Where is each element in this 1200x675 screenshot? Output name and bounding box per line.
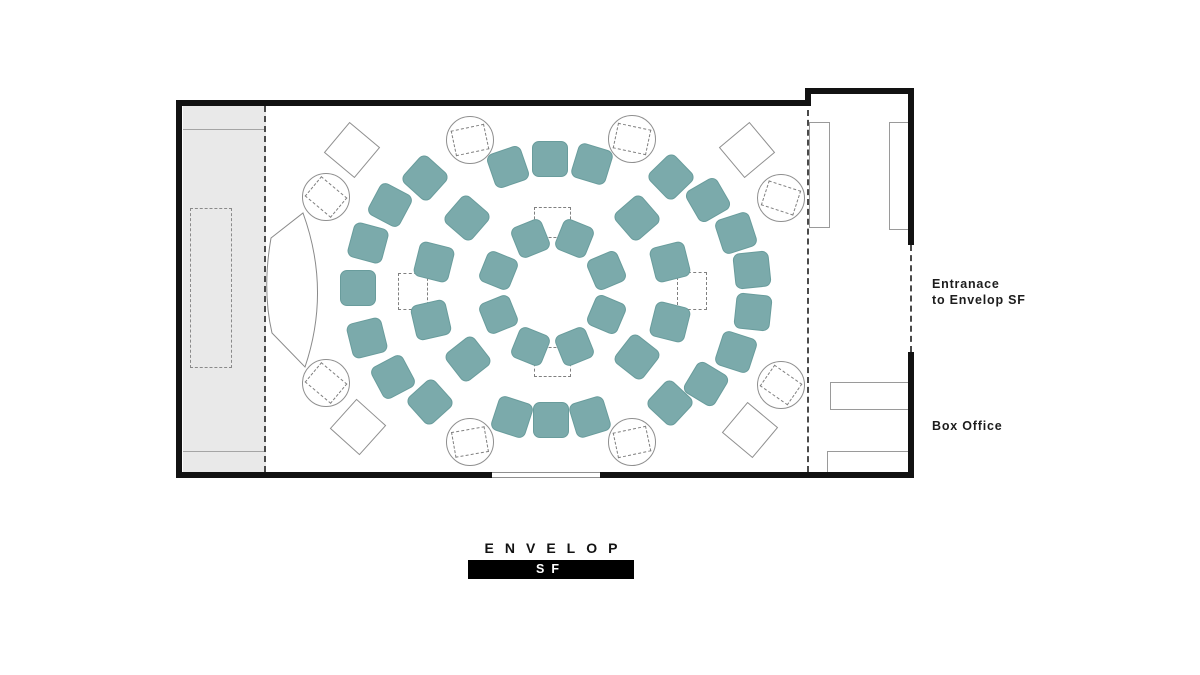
seat (733, 292, 773, 332)
seat (713, 210, 758, 255)
seat (584, 292, 627, 335)
floorplan-canvas: Entranace to Envelop SF Box Office ENVEL… (0, 0, 1200, 675)
seat (732, 250, 772, 290)
speaker-circle-marker (757, 174, 805, 222)
speaker-dashed-rect (451, 124, 490, 157)
seat (477, 249, 520, 292)
speaker-dashed-rect (761, 180, 801, 215)
diamond-marker (330, 399, 386, 455)
seat (366, 181, 415, 230)
subwoofer-dashed-marker (677, 272, 707, 310)
seat (584, 248, 627, 291)
speaker-dashed-rect (760, 365, 803, 406)
wall-right-lower (908, 352, 914, 478)
seat (346, 221, 390, 265)
seat (442, 193, 493, 244)
diamond-marker (722, 402, 778, 458)
wall-bottom-right (600, 472, 914, 478)
speaker-circle-marker (302, 359, 350, 407)
diamond-marker (324, 122, 380, 178)
speaker-circle-marker (446, 418, 494, 466)
seat (340, 270, 376, 306)
seat (568, 395, 613, 440)
speaker-dashed-rect (305, 176, 348, 218)
wall-bottom-left (176, 472, 492, 478)
stage-dashed-rect (190, 208, 232, 368)
wall-top-right (805, 88, 914, 94)
seat (443, 334, 494, 385)
speaker-dashed-rect (613, 123, 652, 156)
speaker-circle-marker (302, 173, 350, 221)
envelop-logo-wordmark: ENVELOP (468, 540, 645, 556)
speaker-dashed-rect (451, 426, 489, 458)
seat (612, 332, 663, 383)
entrance-label: Entranace to Envelop SF (932, 276, 1026, 308)
seat (489, 394, 534, 439)
room-divider-dashed-line (807, 110, 809, 472)
speaker-circle-marker (608, 418, 656, 466)
diamond-marker (719, 122, 775, 178)
lobby-fixture-rect (830, 382, 913, 410)
entrance-label-line2: to Envelop SF (932, 293, 1026, 307)
seat (570, 142, 615, 187)
wall-left (176, 100, 182, 478)
speaker-circle-marker (757, 361, 805, 409)
wall-top (176, 100, 810, 106)
seat (477, 293, 520, 336)
wall-bottom-opening (492, 472, 600, 478)
box-office-label: Box Office (932, 418, 1003, 434)
seat (485, 144, 531, 190)
speaker-circle-marker (608, 115, 656, 163)
seat (532, 141, 568, 177)
envelop-logo: ENVELOP SF (468, 540, 634, 579)
seat (345, 316, 389, 360)
entrance-opening-dashed-line (910, 245, 912, 352)
seat (612, 193, 663, 244)
entrance-label-line1: Entranace (932, 277, 1000, 291)
seat (533, 402, 569, 438)
seat (409, 298, 452, 341)
envelop-logo-sf-badge: SF (468, 560, 634, 579)
wall-right-upper (908, 88, 914, 245)
seat (648, 300, 692, 344)
speaker-dashed-rect (305, 362, 348, 404)
seat (713, 329, 758, 374)
speaker-dashed-rect (613, 426, 652, 459)
lobby-fixture-rect (809, 122, 830, 228)
